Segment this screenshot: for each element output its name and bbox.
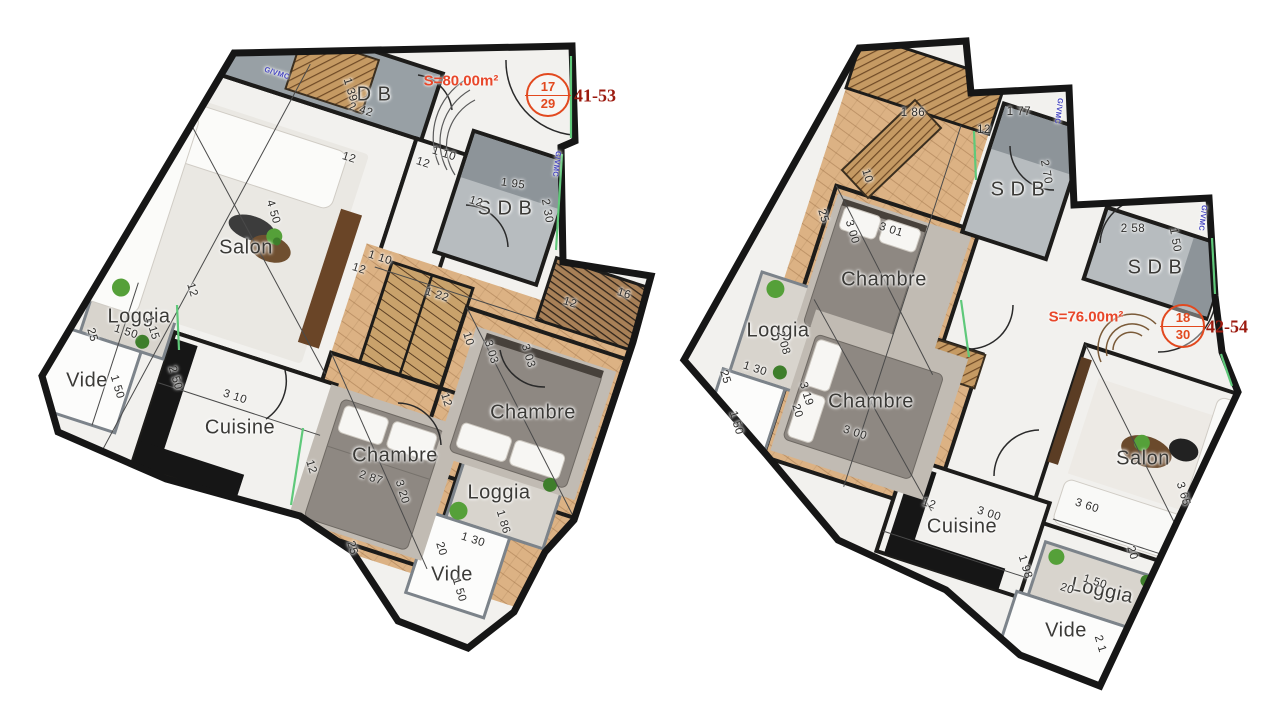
- right-plan: [662, 20, 1280, 707]
- floorplan-canvas: SalonD BS D BChambreChambreCuisineLoggia…: [0, 0, 1280, 707]
- unit-number-bottom: 29: [541, 97, 555, 110]
- unit-number-bottom: 30: [1176, 328, 1190, 341]
- unit-number-badge: 17 29: [526, 73, 570, 117]
- area-label: S=80.00m²: [424, 73, 499, 90]
- unit-number-top: 17: [541, 80, 555, 93]
- area-label: S=76.00m²: [1049, 309, 1124, 326]
- unit-number-badge: 18 30: [1161, 304, 1205, 348]
- unit-range-label: 41-53: [574, 86, 616, 107]
- floor-plans-drawing: [0, 0, 1280, 707]
- unit-range-label: 42-54: [1206, 317, 1248, 338]
- unit-number-top: 18: [1176, 311, 1190, 324]
